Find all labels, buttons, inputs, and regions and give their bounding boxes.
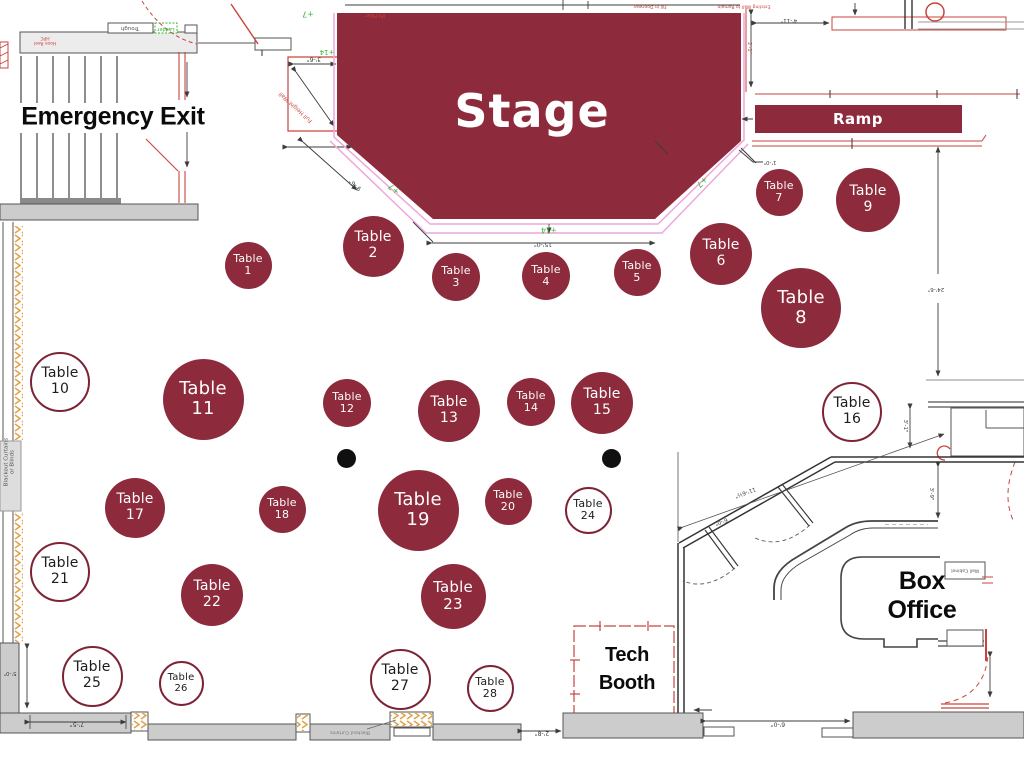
- table-word: Table: [777, 288, 825, 308]
- annotation-label: 24'-6": [928, 286, 945, 292]
- annotation-label: +14: [320, 48, 335, 56]
- annotation-label: 3'-9": [928, 487, 934, 500]
- table-19-marker[interactable]: Table19: [378, 470, 459, 551]
- table-number: 13: [440, 411, 458, 427]
- table-number: 7: [775, 192, 782, 204]
- table-9-marker[interactable]: Table9: [836, 168, 900, 232]
- table-word: Table: [179, 379, 227, 399]
- table-number: 24: [581, 510, 595, 522]
- annotation-label: Blackout Curtains or Blinds: [4, 438, 17, 486]
- table-27-marker[interactable]: Table27: [370, 649, 431, 710]
- table-12-marker[interactable]: Table12: [323, 379, 371, 427]
- table-word: Table: [849, 184, 886, 200]
- annotation-label: 7'-5": [70, 720, 84, 727]
- table-number: 23: [443, 596, 463, 613]
- table-word: Table: [583, 387, 620, 403]
- table-8-marker[interactable]: Table8: [761, 268, 841, 348]
- floor-mark-dot: [337, 449, 356, 468]
- table-6-marker[interactable]: Table6: [690, 223, 752, 285]
- annotation-label: 3'-6": [307, 55, 321, 62]
- table-11-marker[interactable]: Table11: [163, 359, 244, 440]
- table-26-marker[interactable]: Table26: [159, 661, 204, 706]
- table-word: Table: [41, 556, 78, 572]
- annotation-label: Blackout Curtains: [330, 729, 370, 734]
- table-word: Table: [833, 396, 870, 412]
- table-number: 1: [244, 265, 251, 277]
- table-number: 15: [593, 403, 611, 419]
- table-2-marker[interactable]: Table2: [343, 216, 404, 277]
- table-3-marker[interactable]: Table3: [432, 253, 480, 301]
- table-word: Table: [168, 672, 195, 683]
- table-13-marker[interactable]: Table13: [418, 380, 480, 442]
- table-number: 22: [203, 595, 221, 611]
- annotation-label: 15'-0": [534, 240, 552, 247]
- tech-booth-label: Tech Booth: [599, 641, 655, 697]
- table-17-marker[interactable]: Table17: [105, 478, 165, 538]
- table-15-marker[interactable]: Table15: [571, 372, 633, 434]
- table-number: 17: [126, 508, 144, 524]
- table-5-marker[interactable]: Table5: [614, 249, 661, 296]
- table-word: Table: [354, 230, 391, 246]
- table-word: Table: [702, 238, 739, 254]
- annotation-label: Ladder: [157, 25, 174, 31]
- table-18-marker[interactable]: Table18: [259, 486, 306, 533]
- table-word: Table: [73, 660, 110, 676]
- stage-label: Stage: [454, 84, 609, 138]
- table-word: Table: [430, 395, 467, 411]
- table-16-marker[interactable]: Table16: [822, 382, 882, 442]
- table-20-marker[interactable]: Table20: [485, 478, 532, 525]
- annotation-label: +14: [541, 225, 557, 234]
- table-22-marker[interactable]: Table22: [181, 564, 243, 626]
- box-office-label: Box Office: [871, 567, 973, 625]
- table-number: 21: [51, 572, 69, 588]
- table-14-marker[interactable]: Table14: [507, 378, 555, 426]
- table-number: 12: [340, 403, 354, 415]
- table-word: Table: [433, 579, 473, 596]
- table-1-marker[interactable]: Table1: [225, 242, 272, 289]
- table-number: 20: [501, 501, 515, 513]
- table-7-marker[interactable]: Table7: [756, 169, 803, 216]
- table-number: 28: [483, 688, 497, 700]
- table-number: 16: [843, 412, 861, 428]
- table-4-marker[interactable]: Table4: [522, 252, 570, 300]
- table-number: 14: [524, 402, 538, 414]
- right-dimension: [926, 147, 1024, 380]
- annotation-label: 5'-0": [3, 670, 16, 676]
- table-number: 3: [452, 277, 459, 289]
- table-number: 26: [174, 683, 187, 694]
- annotation-label: Trough: [121, 25, 140, 31]
- annotation-label: 2'-8": [535, 729, 549, 736]
- ramp-label: Ramp: [833, 110, 883, 128]
- right-room: [910, 402, 1024, 520]
- table-25-marker[interactable]: Table25: [62, 646, 123, 707]
- emergency-exit-label: Emergency Exit: [21, 103, 204, 132]
- table-number: 27: [391, 679, 409, 695]
- table-word: Table: [394, 490, 442, 510]
- annotation-label: 1'-0": [763, 159, 776, 165]
- annotation-label: +7: [302, 9, 314, 18]
- table-number: 9: [863, 200, 872, 216]
- table-number: 11: [191, 399, 214, 419]
- table-21-marker[interactable]: Table21: [30, 542, 90, 602]
- table-number: 6: [716, 254, 725, 270]
- table-24-marker[interactable]: Table24: [565, 487, 612, 534]
- table-28-marker[interactable]: Table28: [467, 665, 514, 712]
- annotation-label: 6'-0": [771, 720, 785, 727]
- table-number: 2: [368, 246, 377, 262]
- table-number: 4: [542, 276, 549, 288]
- annotation-label: 2'-1": [745, 42, 751, 54]
- top-right-walls: [746, 0, 1024, 99]
- floor-mark-dot: [602, 449, 621, 468]
- table-number: 8: [795, 308, 807, 328]
- table-number: 25: [83, 676, 101, 692]
- bottom-walls: [0, 712, 1024, 740]
- annotation-label: Pit Filler: [365, 11, 385, 17]
- venue-floorplan: Stage Ramp Emergency Exit Box Office Tec…: [0, 0, 1024, 759]
- table-number: 5: [633, 272, 640, 284]
- annotation-label: Fill in Doorway: [634, 3, 667, 8]
- table-number: 19: [406, 510, 429, 530]
- table-word: Table: [116, 492, 153, 508]
- table-word: Table: [381, 663, 418, 679]
- table-word: Table: [41, 366, 78, 382]
- annotation-label: 4'-11": [781, 17, 798, 23]
- table-number: 10: [51, 382, 69, 398]
- table-number: 18: [275, 509, 289, 521]
- table-word: Table: [193, 579, 230, 595]
- annotation-label: Hose Reel HPC: [34, 35, 56, 45]
- table-23-marker[interactable]: Table23: [421, 564, 486, 629]
- annotation-label: 3'-1": [902, 419, 908, 432]
- table-10-marker[interactable]: Table10: [30, 352, 90, 412]
- annotation-label: Existing Wall to Remain: [718, 3, 771, 8]
